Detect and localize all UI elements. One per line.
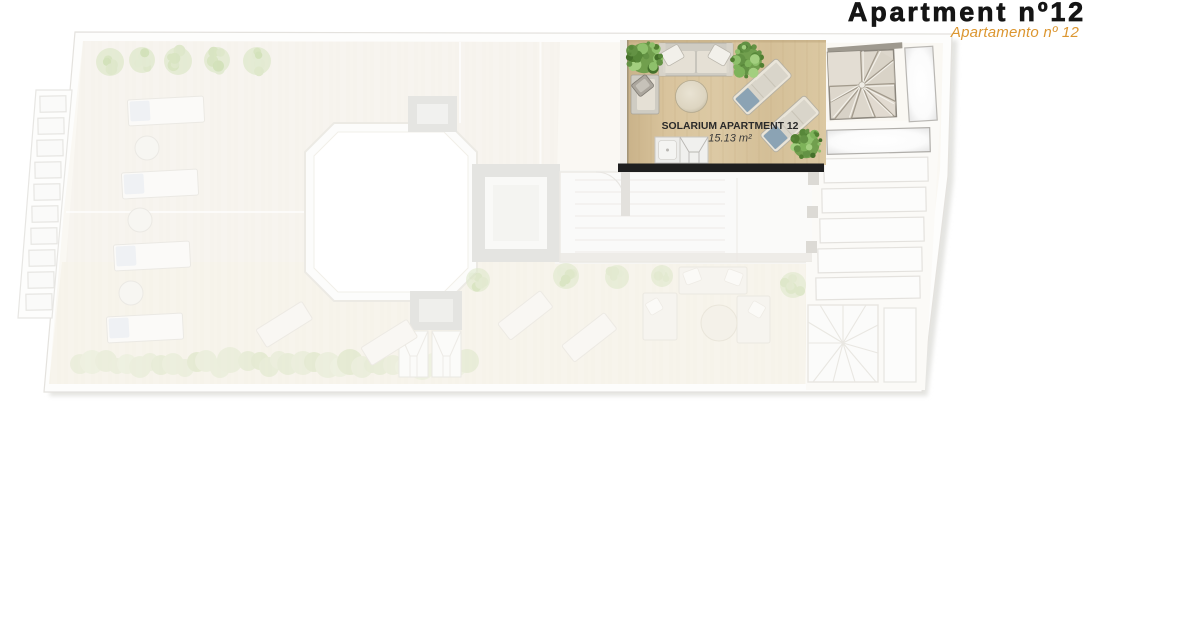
svg-text:15.13 m²: 15.13 m² xyxy=(708,133,752,145)
svg-text:SOLARIUM APARTMENT 12: SOLARIUM APARTMENT 12 xyxy=(662,121,799,132)
